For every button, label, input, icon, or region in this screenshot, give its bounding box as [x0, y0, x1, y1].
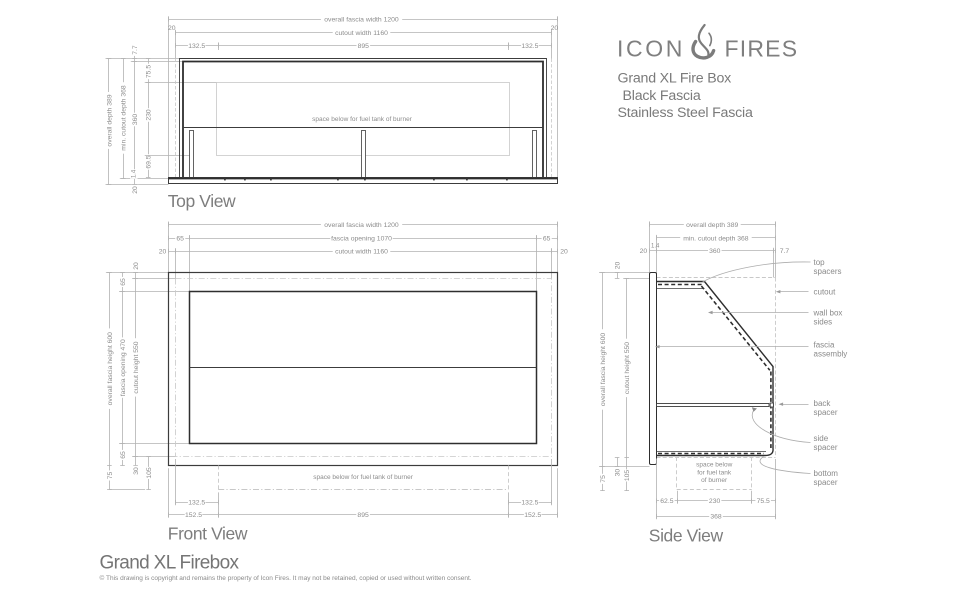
- svg-text:20: 20: [159, 249, 167, 256]
- svg-text:fascia opening 1070: fascia opening 1070: [331, 235, 392, 242]
- svg-text:spacers: spacers: [814, 267, 842, 276]
- svg-text:368: 368: [710, 514, 722, 521]
- svg-text:62.5: 62.5: [660, 498, 673, 505]
- svg-text:space below for fuel tank of b: space below for fuel tank of burner: [312, 116, 413, 123]
- svg-text:fascia opening 470: fascia opening 470: [120, 339, 127, 396]
- svg-text:spacer: spacer: [814, 443, 838, 452]
- svg-text:cutout height 550: cutout height 550: [133, 341, 140, 393]
- svg-text:105: 105: [146, 467, 153, 479]
- svg-text:152.5: 152.5: [185, 512, 202, 519]
- svg-text:bottom: bottom: [814, 469, 839, 478]
- svg-text:105: 105: [624, 470, 631, 482]
- svg-text:7.7: 7.7: [780, 248, 790, 255]
- svg-text:sides: sides: [814, 318, 833, 327]
- svg-text:Front View: Front View: [168, 524, 248, 544]
- svg-text:75: 75: [107, 472, 114, 480]
- svg-text:assembly: assembly: [814, 350, 848, 359]
- svg-text:overall fascia width 1200: overall fascia width 1200: [324, 17, 399, 24]
- svg-text:75: 75: [600, 475, 607, 483]
- svg-text:fascia: fascia: [814, 341, 835, 350]
- svg-text:overall fascia height 600: overall fascia height 600: [600, 333, 607, 407]
- svg-text:side: side: [814, 434, 829, 443]
- svg-text:Side View: Side View: [649, 526, 724, 546]
- svg-text:© This drawing is copyright an: © This drawing is copyright and remains …: [100, 574, 472, 582]
- svg-text:65: 65: [176, 235, 184, 242]
- svg-text:cutout width 1160: cutout width 1160: [335, 30, 388, 37]
- svg-text:of burner: of burner: [701, 477, 728, 484]
- svg-text:20: 20: [132, 186, 139, 194]
- svg-text:cutout width 1160: cutout width 1160: [335, 249, 388, 256]
- svg-text:65: 65: [120, 451, 127, 459]
- svg-text:132.5: 132.5: [188, 43, 205, 50]
- svg-text:20: 20: [615, 262, 622, 270]
- svg-text:for fuel tank: for fuel tank: [697, 469, 732, 476]
- svg-text:min. cutout depth 368: min. cutout depth 368: [683, 235, 749, 242]
- svg-text:132.5: 132.5: [188, 500, 205, 507]
- svg-text:30: 30: [133, 467, 140, 475]
- svg-text:20: 20: [168, 25, 176, 32]
- svg-text:895: 895: [357, 512, 369, 519]
- svg-text:cutout height 550: cutout height 550: [624, 342, 631, 394]
- svg-text:overall depth 389: overall depth 389: [686, 222, 738, 229]
- svg-text:20: 20: [133, 262, 140, 270]
- svg-text:132.5: 132.5: [521, 43, 538, 50]
- svg-text:75.5: 75.5: [146, 65, 153, 78]
- svg-text:wall box: wall box: [813, 309, 843, 318]
- svg-text:Stainless Steel Fascia: Stainless Steel Fascia: [618, 105, 753, 121]
- svg-text:Black Fascia: Black Fascia: [623, 88, 701, 104]
- svg-text:spacer: spacer: [814, 408, 838, 417]
- svg-text:65: 65: [543, 235, 551, 242]
- svg-text:360: 360: [709, 248, 721, 255]
- svg-text:space below: space below: [696, 462, 732, 469]
- svg-text:back: back: [814, 399, 832, 408]
- svg-text:230: 230: [709, 498, 721, 505]
- svg-text:20: 20: [560, 249, 568, 256]
- svg-text:Grand XL Fire Box: Grand XL Fire Box: [618, 71, 732, 87]
- svg-text:min. cutout depth 368: min. cutout depth 368: [121, 85, 128, 151]
- svg-text:1.4: 1.4: [651, 244, 660, 250]
- svg-text:152.5: 152.5: [524, 512, 541, 519]
- svg-text:cutout: cutout: [814, 287, 837, 296]
- svg-text:132.5: 132.5: [521, 500, 538, 507]
- svg-text:65: 65: [120, 278, 127, 286]
- svg-text:7.7: 7.7: [132, 45, 139, 55]
- svg-text:overall fascia width 1200: overall fascia width 1200: [324, 222, 399, 229]
- svg-text:1.4: 1.4: [132, 169, 138, 178]
- svg-text:Grand XL Firebox: Grand XL Firebox: [100, 553, 240, 574]
- svg-text:FIRES: FIRES: [725, 36, 799, 62]
- svg-text:space below for fuel tank of b: space below for fuel tank of burner: [313, 474, 414, 481]
- svg-text:overall fascia height 600: overall fascia height 600: [107, 332, 114, 406]
- svg-text:ICON: ICON: [617, 36, 685, 62]
- svg-text:30: 30: [615, 469, 622, 477]
- svg-text:top: top: [814, 258, 826, 267]
- svg-text:75.5: 75.5: [757, 498, 770, 505]
- svg-text:20: 20: [640, 248, 648, 255]
- svg-text:230: 230: [146, 109, 153, 121]
- svg-text:360: 360: [132, 114, 139, 126]
- svg-text:69.5: 69.5: [146, 155, 153, 168]
- svg-text:Top View: Top View: [168, 191, 236, 211]
- svg-text:895: 895: [358, 43, 370, 50]
- svg-text:overall depth 389: overall depth 389: [106, 94, 113, 146]
- svg-text:spacer: spacer: [814, 478, 838, 487]
